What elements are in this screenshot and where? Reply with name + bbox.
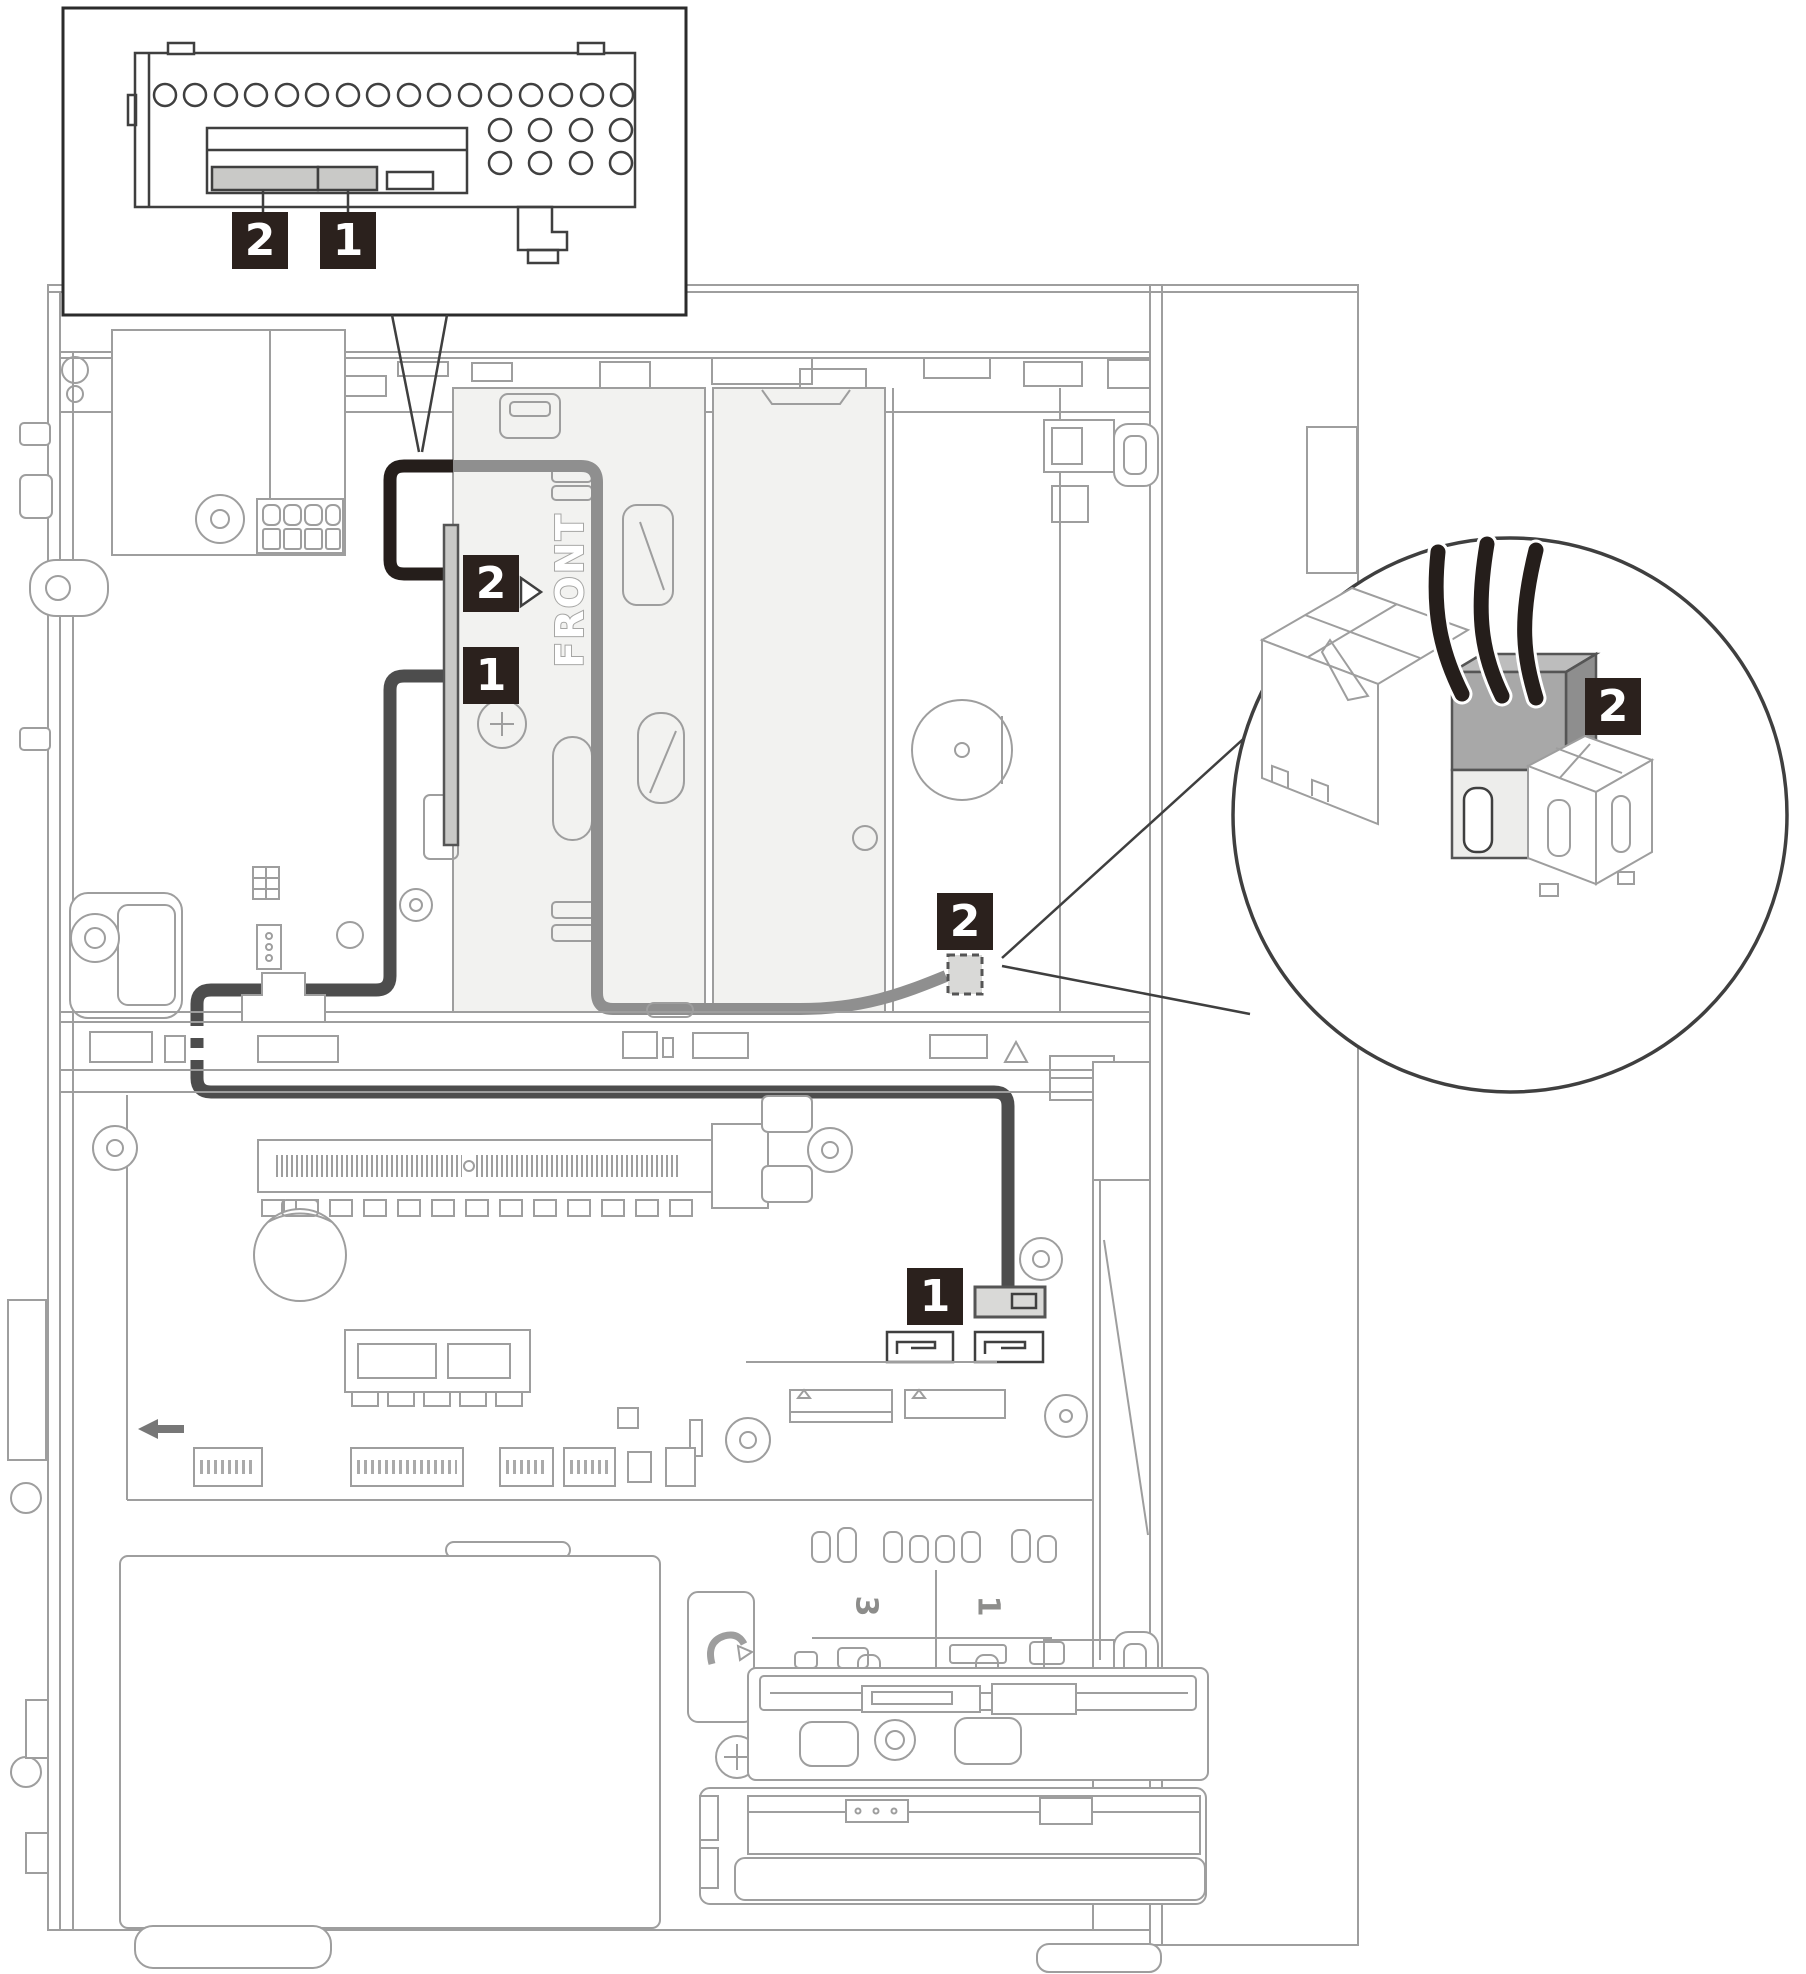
torx-screw	[808, 1128, 852, 1172]
fan-hub	[1045, 1395, 1087, 1437]
torx-screw	[93, 1126, 137, 1170]
psu-upper-area	[112, 330, 345, 555]
optical-drive-connector-bar	[444, 525, 458, 845]
cage-label-2-power-cable: 2	[463, 555, 519, 612]
power-8pin-connector	[257, 499, 343, 553]
motherboard-label-1-sata-connector: 1	[907, 1268, 963, 1325]
torx-screw	[196, 495, 244, 543]
chassis-feet	[135, 1926, 1161, 1972]
silkscreen-1: 1	[971, 1596, 1006, 1617]
optical-sata-connector	[975, 1287, 1045, 1317]
inset-label-2-power-connector: 2	[232, 212, 288, 269]
torx-screw	[1020, 1238, 1062, 1280]
psu-panel	[120, 1542, 660, 1928]
drive-tray-2-5	[700, 1788, 1206, 1904]
inset-sata-connector	[318, 167, 377, 190]
diagram-line-art: FRONT	[0, 0, 1806, 1974]
power-junction-connector	[948, 955, 982, 994]
callout-label-2-power-connector: 2	[1585, 678, 1641, 735]
bay-knockout-circle	[912, 700, 1012, 800]
junction-label-2-power-cable: 2	[937, 893, 993, 950]
cable-routing-diagram: FRONT	[0, 0, 1806, 1974]
inset-label-1-signal-connector: 1	[320, 212, 376, 269]
cage-label-1-signal-cable: 1	[463, 647, 519, 704]
inset-power-connector	[212, 167, 318, 190]
silkscreen-3: 3	[849, 1596, 884, 1617]
torx-screw	[726, 1418, 770, 1462]
cage-bracket-screw	[400, 889, 432, 921]
front-direction-text: FRONT	[548, 512, 592, 667]
